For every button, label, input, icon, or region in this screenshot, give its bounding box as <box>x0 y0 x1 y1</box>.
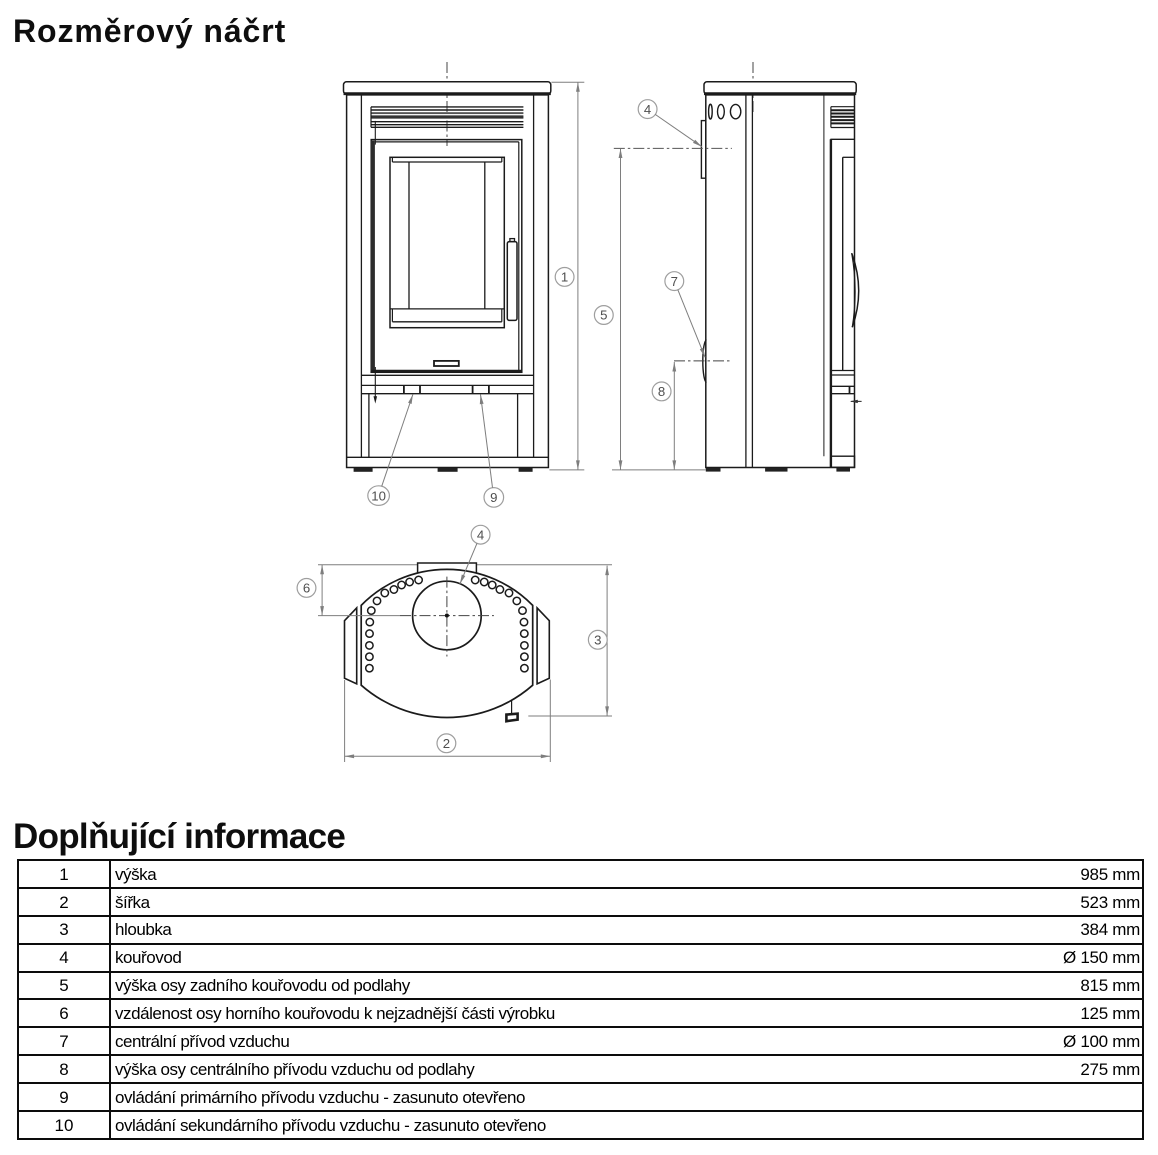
svg-text:8: 8 <box>658 384 665 399</box>
svg-text:6: 6 <box>303 581 310 596</box>
svg-text:2: 2 <box>443 736 450 751</box>
svg-text:4: 4 <box>477 527 484 542</box>
svg-text:10: 10 <box>371 488 386 503</box>
svg-text:9: 9 <box>490 490 497 505</box>
svg-text:7: 7 <box>671 274 678 289</box>
svg-text:3: 3 <box>594 633 601 648</box>
svg-text:4: 4 <box>644 102 651 117</box>
svg-text:5: 5 <box>600 308 607 323</box>
svg-text:1: 1 <box>561 270 568 285</box>
